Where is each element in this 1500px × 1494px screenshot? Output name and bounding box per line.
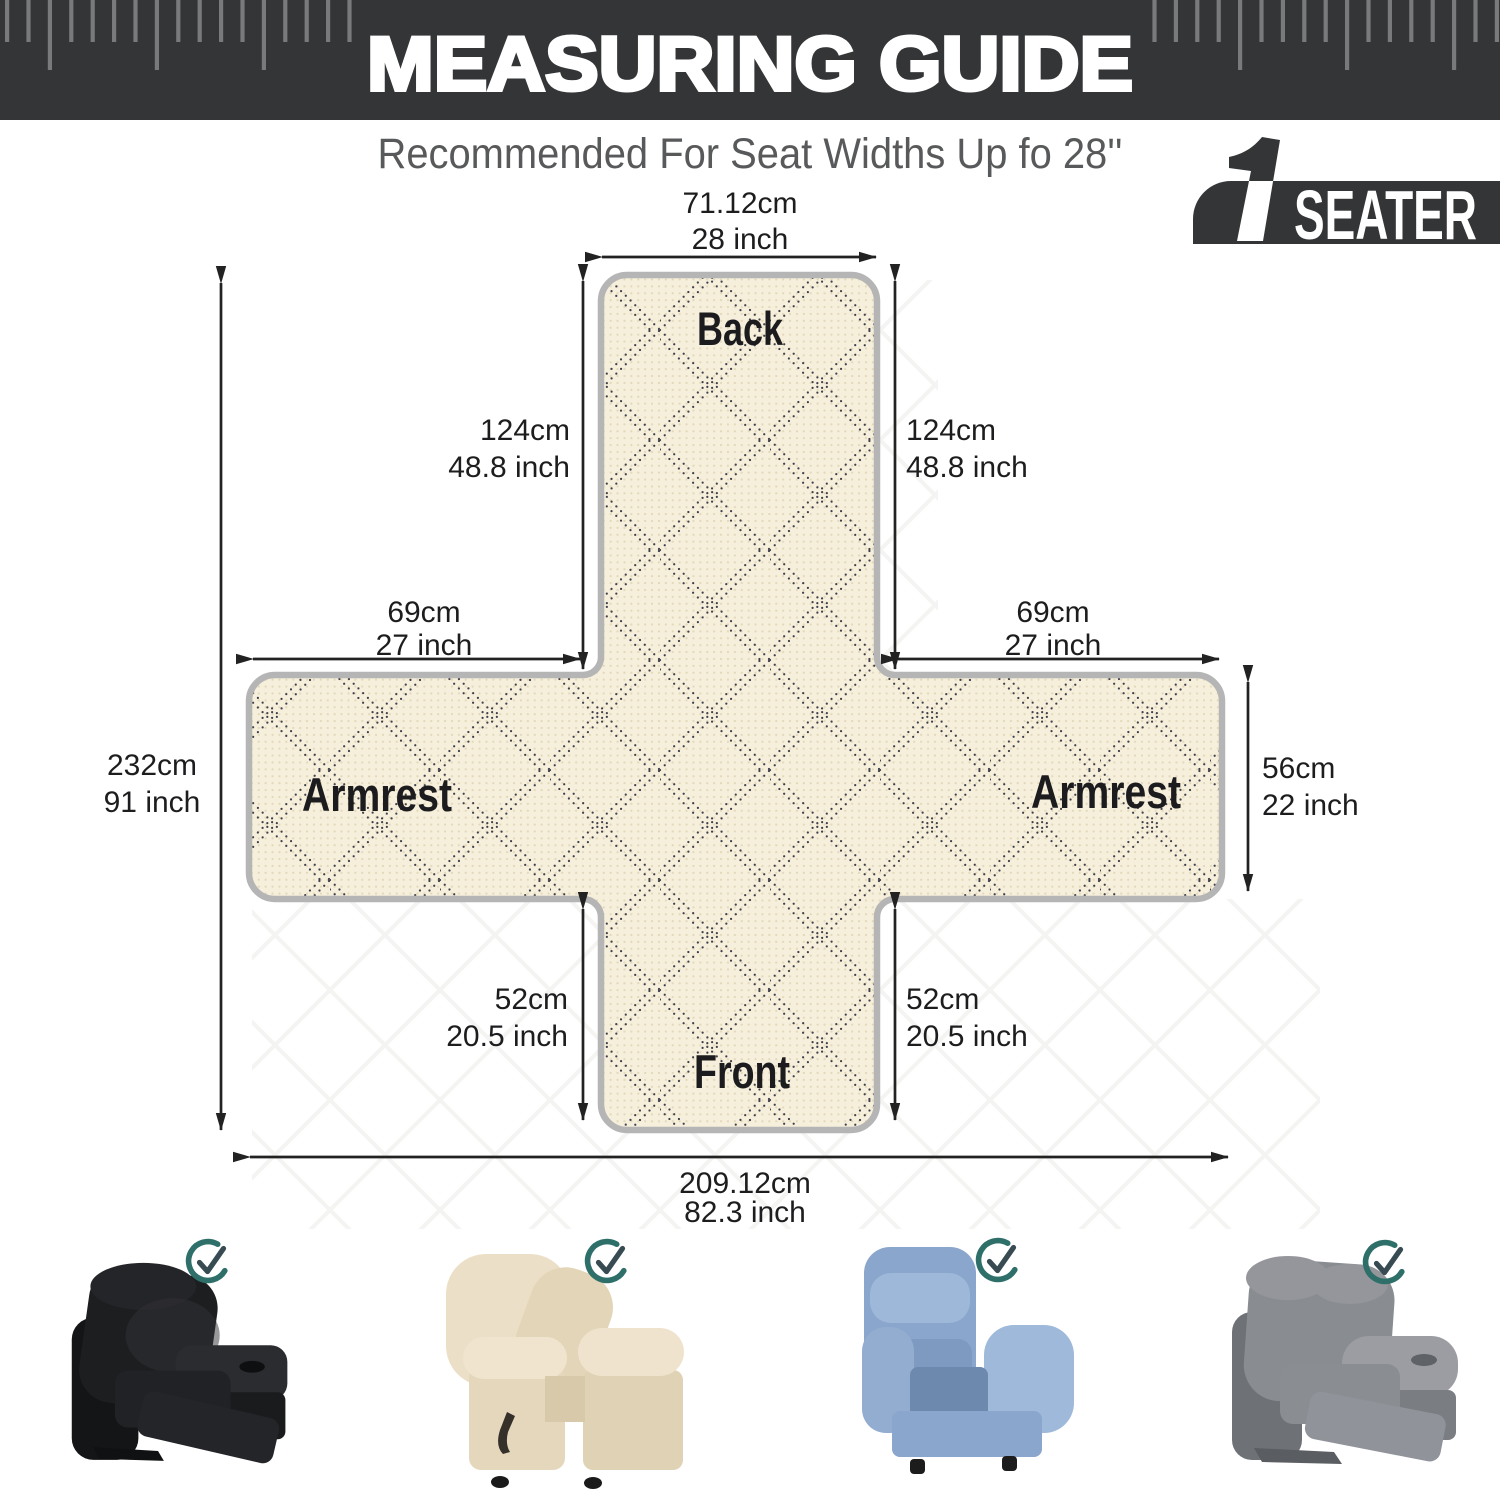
svg-text:69cm: 69cm <box>387 596 460 629</box>
svg-text:232cm: 232cm <box>107 749 197 782</box>
svg-text:Armrest: Armrest <box>1031 765 1181 818</box>
svg-text:20.5 inch: 20.5 inch <box>446 1020 568 1053</box>
svg-text:71.12cm: 71.12cm <box>682 187 797 220</box>
svg-text:Armrest: Armrest <box>302 768 452 821</box>
svg-text:91 inch: 91 inch <box>104 786 201 819</box>
svg-text:56cm: 56cm <box>1262 752 1335 785</box>
svg-text:69cm: 69cm <box>1016 596 1089 629</box>
svg-text:Recommended For Seat Widths Up: Recommended For Seat Widths Up fo 28'' <box>378 130 1123 178</box>
svg-text:27 inch: 27 inch <box>1005 629 1102 662</box>
svg-text:48.8 inch: 48.8 inch <box>448 451 570 484</box>
svg-text:MEASURING GUIDE: MEASURING GUIDE <box>367 22 1133 107</box>
svg-text:124cm: 124cm <box>906 414 996 447</box>
svg-text:82.3 inch: 82.3 inch <box>684 1196 806 1229</box>
svg-text:27 inch: 27 inch <box>376 629 473 662</box>
svg-text:Front: Front <box>694 1045 790 1098</box>
svg-text:20.5 inch: 20.5 inch <box>906 1020 1028 1053</box>
svg-text:52cm: 52cm <box>906 983 979 1016</box>
svg-text:52cm: 52cm <box>495 983 568 1016</box>
svg-text:48.8 inch: 48.8 inch <box>906 451 1028 484</box>
svg-text:SEATER: SEATER <box>1294 176 1477 254</box>
svg-text:22 inch: 22 inch <box>1262 789 1359 822</box>
svg-text:Back: Back <box>697 302 784 355</box>
svg-text:28 inch: 28 inch <box>692 223 789 256</box>
svg-text:124cm: 124cm <box>480 414 570 447</box>
